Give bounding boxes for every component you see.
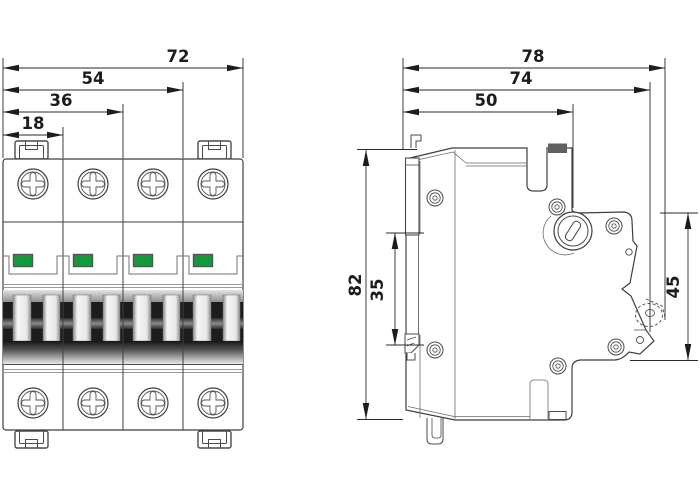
dim-72: 72	[3, 47, 243, 71]
dim-label-din-slot-height: 35	[368, 279, 387, 302]
busbar-tab	[548, 144, 567, 154]
dim-label-overall-depth: 78	[522, 47, 545, 66]
dim-18: 18	[3, 114, 63, 138]
dim-label-three-poles: 54	[82, 69, 105, 88]
terminal-clip-top-right	[198, 141, 231, 159]
dim-label-depth-to-lever: 74	[510, 69, 533, 88]
dim-78: 78	[403, 47, 665, 71]
dim-label-housing-depth: 50	[475, 91, 498, 110]
dim-74: 74	[403, 69, 650, 93]
terminal-clip-top-left	[15, 141, 48, 159]
terminal-clip-bottom-left	[15, 430, 48, 448]
status-indicator-window	[134, 255, 153, 267]
status-indicator-window	[14, 255, 33, 267]
side-housing	[406, 148, 654, 420]
dim-50: 50	[403, 91, 573, 115]
status-indicator-window	[194, 255, 213, 267]
drawing-svg: 72 54 36 18 78 74	[0, 0, 700, 500]
mcb-dimensional-drawing: 72 54 36 18 78 74	[0, 0, 700, 500]
side-view	[405, 135, 665, 444]
dim-label-overall-height: 82	[346, 274, 365, 297]
dim-label-pole-width: 18	[22, 114, 45, 133]
dim-label-front-section-height: 45	[664, 276, 683, 299]
bottom-tab	[549, 412, 566, 420]
dim-36: 36	[3, 91, 123, 115]
status-indicator-window	[74, 255, 93, 267]
terminal-screw-side	[554, 212, 592, 250]
dim-54: 54	[3, 69, 183, 93]
front-view	[3, 141, 243, 448]
terminal-clip-bottom-right	[198, 430, 231, 448]
dim-label-overall-width: 72	[167, 47, 190, 66]
dim-label-two-poles: 36	[50, 91, 73, 110]
